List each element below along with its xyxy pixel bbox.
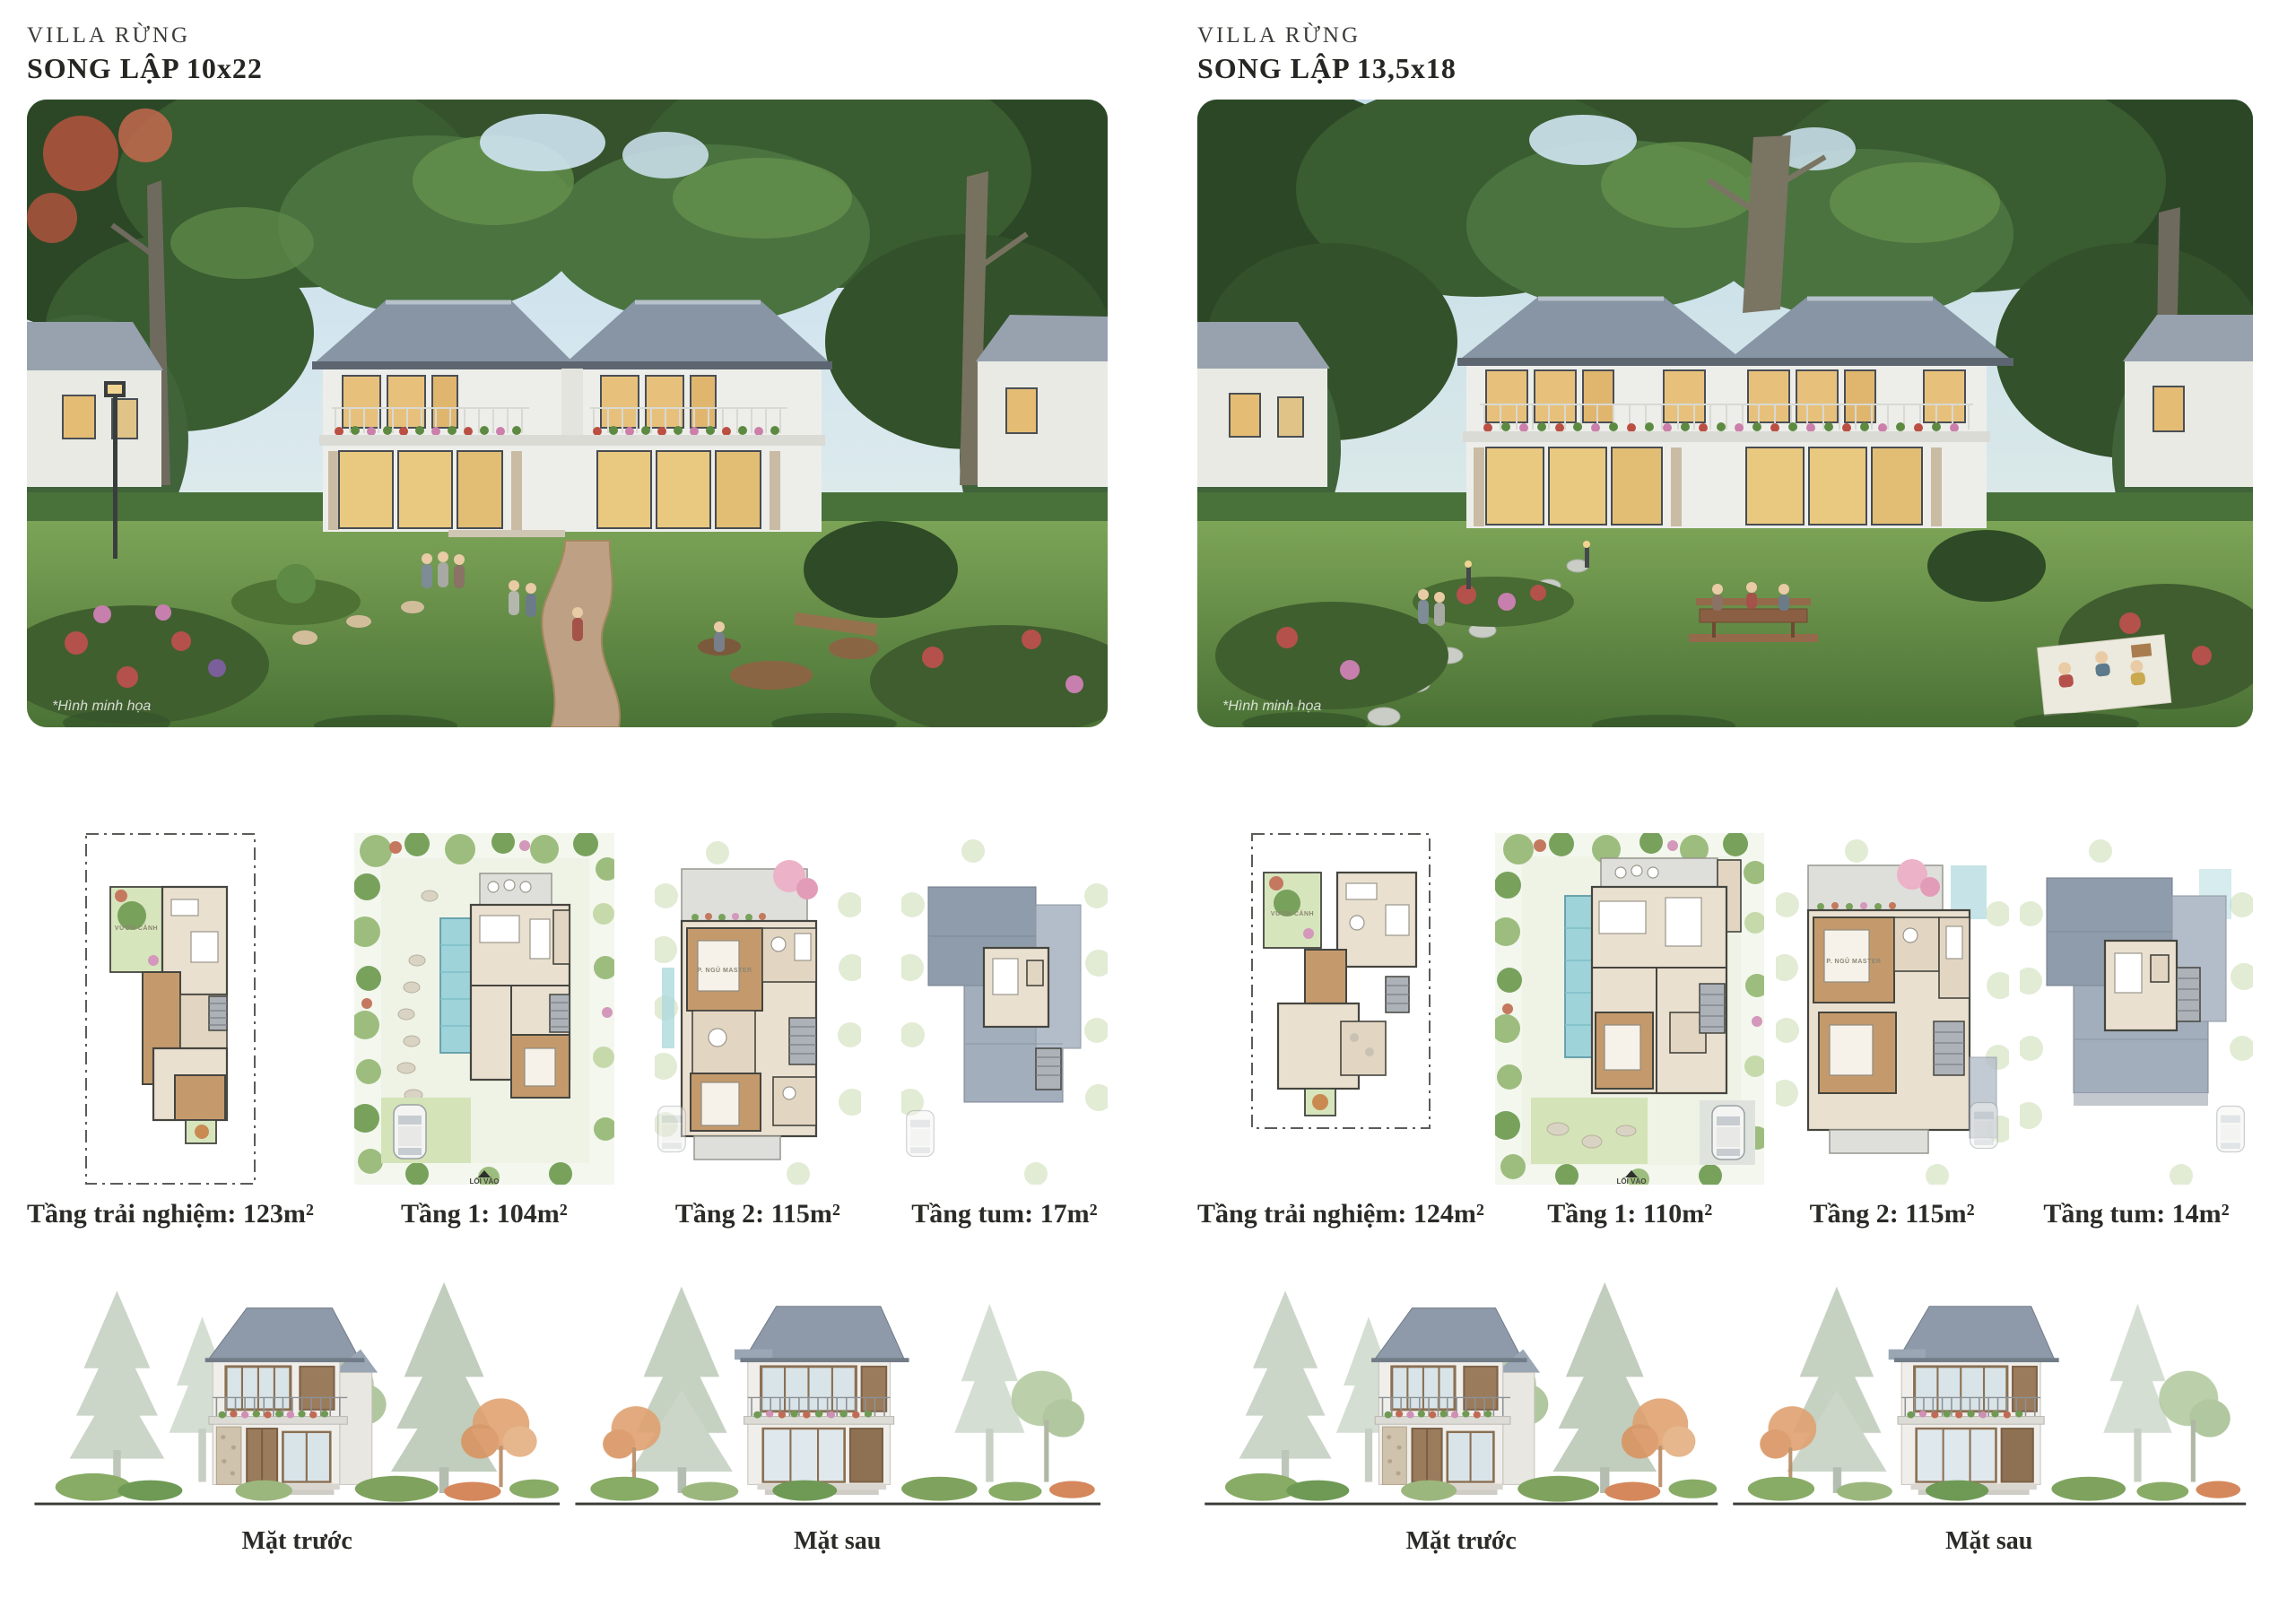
master-bedroom-label: P. NGỦ MASTER [1826, 957, 1881, 965]
villa-subtitle: VILLA RỪNG [1197, 23, 2253, 48]
elevation-back: Mặt sau [1726, 1256, 2254, 1556]
villa-10x22-section: VILLA RỪNG SONG LẬP 10x22 [27, 0, 1108, 1556]
floorplan-experience: VƯỜN CẢNH Tầng trải nghiệm: 123m² [27, 833, 314, 1229]
elevation-caption: Mặt trước [242, 1527, 352, 1556]
elevation-caption: Mặt sau [1945, 1527, 2032, 1556]
elevation-row: Mặt trước Mặt sau [1197, 1256, 2253, 1556]
floorplan-caption: Tầng tum: 17m² [911, 1199, 1097, 1229]
elevation-front: Mặt trước [27, 1256, 568, 1556]
villa-10x22-render-image: *Hình minh họa [27, 100, 1108, 727]
floorplan-caption: Tầng trải nghiệm: 124m² [1197, 1199, 1484, 1229]
floorplan-level2-drawing: P. NGỦ MASTER [1776, 833, 2009, 1185]
floorplan-experience-drawing: VƯỜN CẢNH [1251, 833, 1431, 1129]
villa-subtitle: VILLA RỪNG [27, 23, 1108, 48]
elevation-back: Mặt sau [568, 1256, 1109, 1556]
floorplan-attic: Tầng tum: 17m² [901, 833, 1108, 1229]
floorplan-caption: Tầng tum: 14m² [2043, 1199, 2229, 1229]
floorplan-level1-drawing: LỐI VÀO [1495, 833, 1764, 1185]
elevation-row: Mặt trước Mặt sau [27, 1256, 1108, 1556]
elevation-front: Mặt trước [1197, 1256, 1726, 1556]
elevation-front-drawing [27, 1256, 568, 1515]
villa-13-5x18-render-image: *Hình minh họa [1197, 100, 2253, 727]
elevation-caption: Mặt sau [794, 1527, 881, 1556]
floorplan-level2-drawing: P. NGỦ MASTER [655, 833, 861, 1185]
villa-13-5x18-section: VILLA RỪNG SONG LẬP 13,5x18 [1197, 0, 2253, 1556]
picnic-blanket [2038, 635, 2171, 716]
villa-title: SONG LẬP 10x22 [27, 52, 1108, 85]
floorplan-attic-drawing [2020, 833, 2253, 1185]
elevation-front-drawing [1197, 1256, 1726, 1515]
render-disclaimer: *Hình minh họa [1222, 699, 1321, 715]
render-scene [1197, 100, 2253, 727]
floorplan-row: VƯỜN CẢNH Tầng trải nghiệm: 124m² [1197, 833, 2253, 1229]
master-bedroom-label: P. NGỦ MASTER [697, 966, 752, 974]
floorplan-caption: Tầng 2: 115m² [1810, 1199, 1975, 1229]
floorplan-caption: Tầng 1: 104m² [401, 1199, 568, 1229]
villa-title: SONG LẬP 13,5x18 [1197, 52, 2253, 85]
villa-13-5x18-header: VILLA RỪNG SONG LẬP 13,5x18 [1197, 0, 2253, 85]
garden-room-label: VƯỜN CẢNH [1271, 909, 1314, 917]
floorplan-level1: LỐI VÀO Tầng 1: 110m² [1495, 833, 1764, 1229]
floorplan-experience: VƯỜN CẢNH Tầng trải nghiệm: 124m² [1197, 833, 1484, 1229]
elevation-back-drawing [1726, 1256, 2254, 1515]
floorplan-row: VƯỜN CẢNH Tầng trải nghiệm: 123m² [27, 833, 1108, 1229]
neighbor-house-left [1197, 322, 1330, 487]
render-scene [27, 100, 1108, 727]
neighbor-house-right [2123, 315, 2253, 487]
floorplan-level1-drawing: LỐI VÀO [354, 833, 614, 1185]
elevation-caption: Mặt trước [1406, 1527, 1517, 1556]
floorplan-caption: Tầng trải nghiệm: 123m² [27, 1199, 314, 1229]
brochure-page: VILLA RỪNG SONG LẬP 10x22 [0, 0, 2296, 1607]
floorplan-experience-drawing: VƯỜN CẢNH [85, 833, 256, 1185]
floorplan-caption: Tầng 1: 110m² [1547, 1199, 1712, 1229]
floorplan-attic-drawing [901, 833, 1108, 1185]
floorplan-level2: P. NGỦ MASTER Tầng 2: 115m² [655, 833, 861, 1229]
entry-label: LỐI VÀO [469, 1177, 499, 1185]
neighbor-house-right [976, 315, 1108, 487]
floorplan-level1: LỐI VÀO Tầng 1: 104m² [354, 833, 614, 1229]
floorplan-level2: P. NGỦ MASTER Tầng 2: 115m² [1776, 833, 2009, 1229]
floorplan-attic: Tầng tum: 14m² [2020, 833, 2253, 1229]
villa-10x22-header: VILLA RỪNG SONG LẬP 10x22 [27, 0, 1108, 85]
render-disclaimer: *Hình minh họa [52, 699, 151, 715]
floorplan-caption: Tầng 2: 115m² [675, 1199, 840, 1229]
neighbor-house-left [27, 322, 163, 487]
entry-label: LỐI VÀO [1617, 1177, 1647, 1185]
elevation-back-drawing [568, 1256, 1109, 1515]
garden-room-label: VƯỜN CẢNH [115, 924, 158, 932]
